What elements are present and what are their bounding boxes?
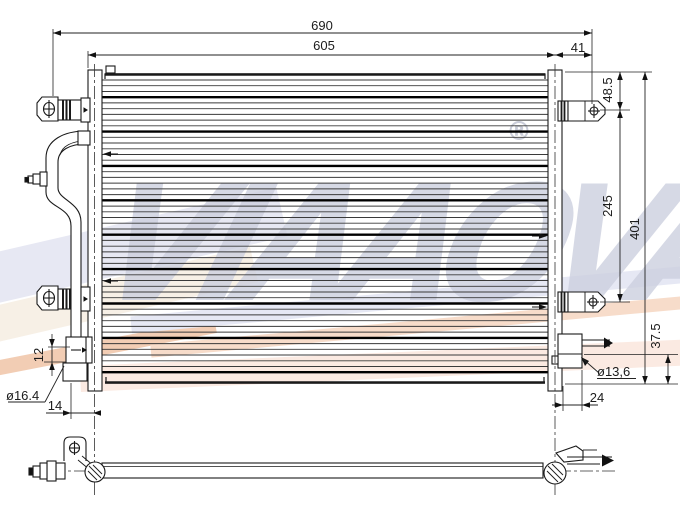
bracket-top-right [558, 101, 605, 121]
dim-core-height: 401 [627, 218, 642, 240]
condenser-profile-bar [102, 463, 543, 478]
bottom-view-right-fitting [544, 446, 614, 484]
dim-inlet-pipe-offset: 14 [48, 398, 62, 413]
dim-core-width: 605 [313, 38, 335, 53]
inlet-fitting [63, 363, 87, 381]
dim-outlet-offset: 24 [590, 390, 604, 405]
bottom-view [29, 437, 614, 484]
dimension-arrow-icon [642, 376, 648, 384]
technical-drawing-page: VIAAOVA ® [0, 0, 680, 512]
dimension-arrow-icon [88, 52, 96, 58]
pipe-flange [78, 131, 90, 145]
dim-overall-width: 690 [311, 18, 333, 33]
service-valve-icon [25, 172, 47, 186]
outlet-elbow [556, 446, 583, 462]
bracket-bottom-right [558, 292, 605, 312]
dim-bracket-top-offset: 48.5 [600, 77, 615, 102]
bracket-top-left [37, 97, 90, 122]
dimension-arrow-icon [53, 30, 61, 36]
dimension-arrow-icon [665, 376, 671, 384]
dimension-arrow-icon [617, 110, 623, 118]
dimension-arrow-icon [547, 52, 555, 58]
dimension-arrow-icon [49, 339, 55, 347]
dim-right-bracket-offset: 41 [571, 40, 585, 55]
dim-outlet-diameter: ø13,6 [597, 364, 630, 379]
condenser-drawing: VIAAOVA ® [0, 0, 680, 512]
dimension-arrow-icon [584, 30, 592, 36]
dimension-arrow-icon [63, 410, 71, 416]
pipe-end [602, 455, 614, 467]
dim-inlet-block-height: 12 [31, 348, 46, 362]
dimension-arrow-icon [555, 52, 563, 58]
dimension-arrow-icon [642, 72, 648, 80]
dim-outlet-bottom-offset: 37.5 [648, 323, 663, 348]
dimension-arrow-icon [555, 402, 563, 408]
side-fitting-stack [29, 461, 65, 481]
dimension-arrow-icon [617, 72, 623, 80]
dimension-arrow-icon [617, 102, 623, 110]
bottom-view-left-fitting [29, 437, 105, 482]
top-side-plate [105, 66, 545, 79]
dim-bracket-hole-spacing: 245 [600, 195, 615, 217]
dim-inlet-diameter: ø16.4 [6, 388, 39, 403]
